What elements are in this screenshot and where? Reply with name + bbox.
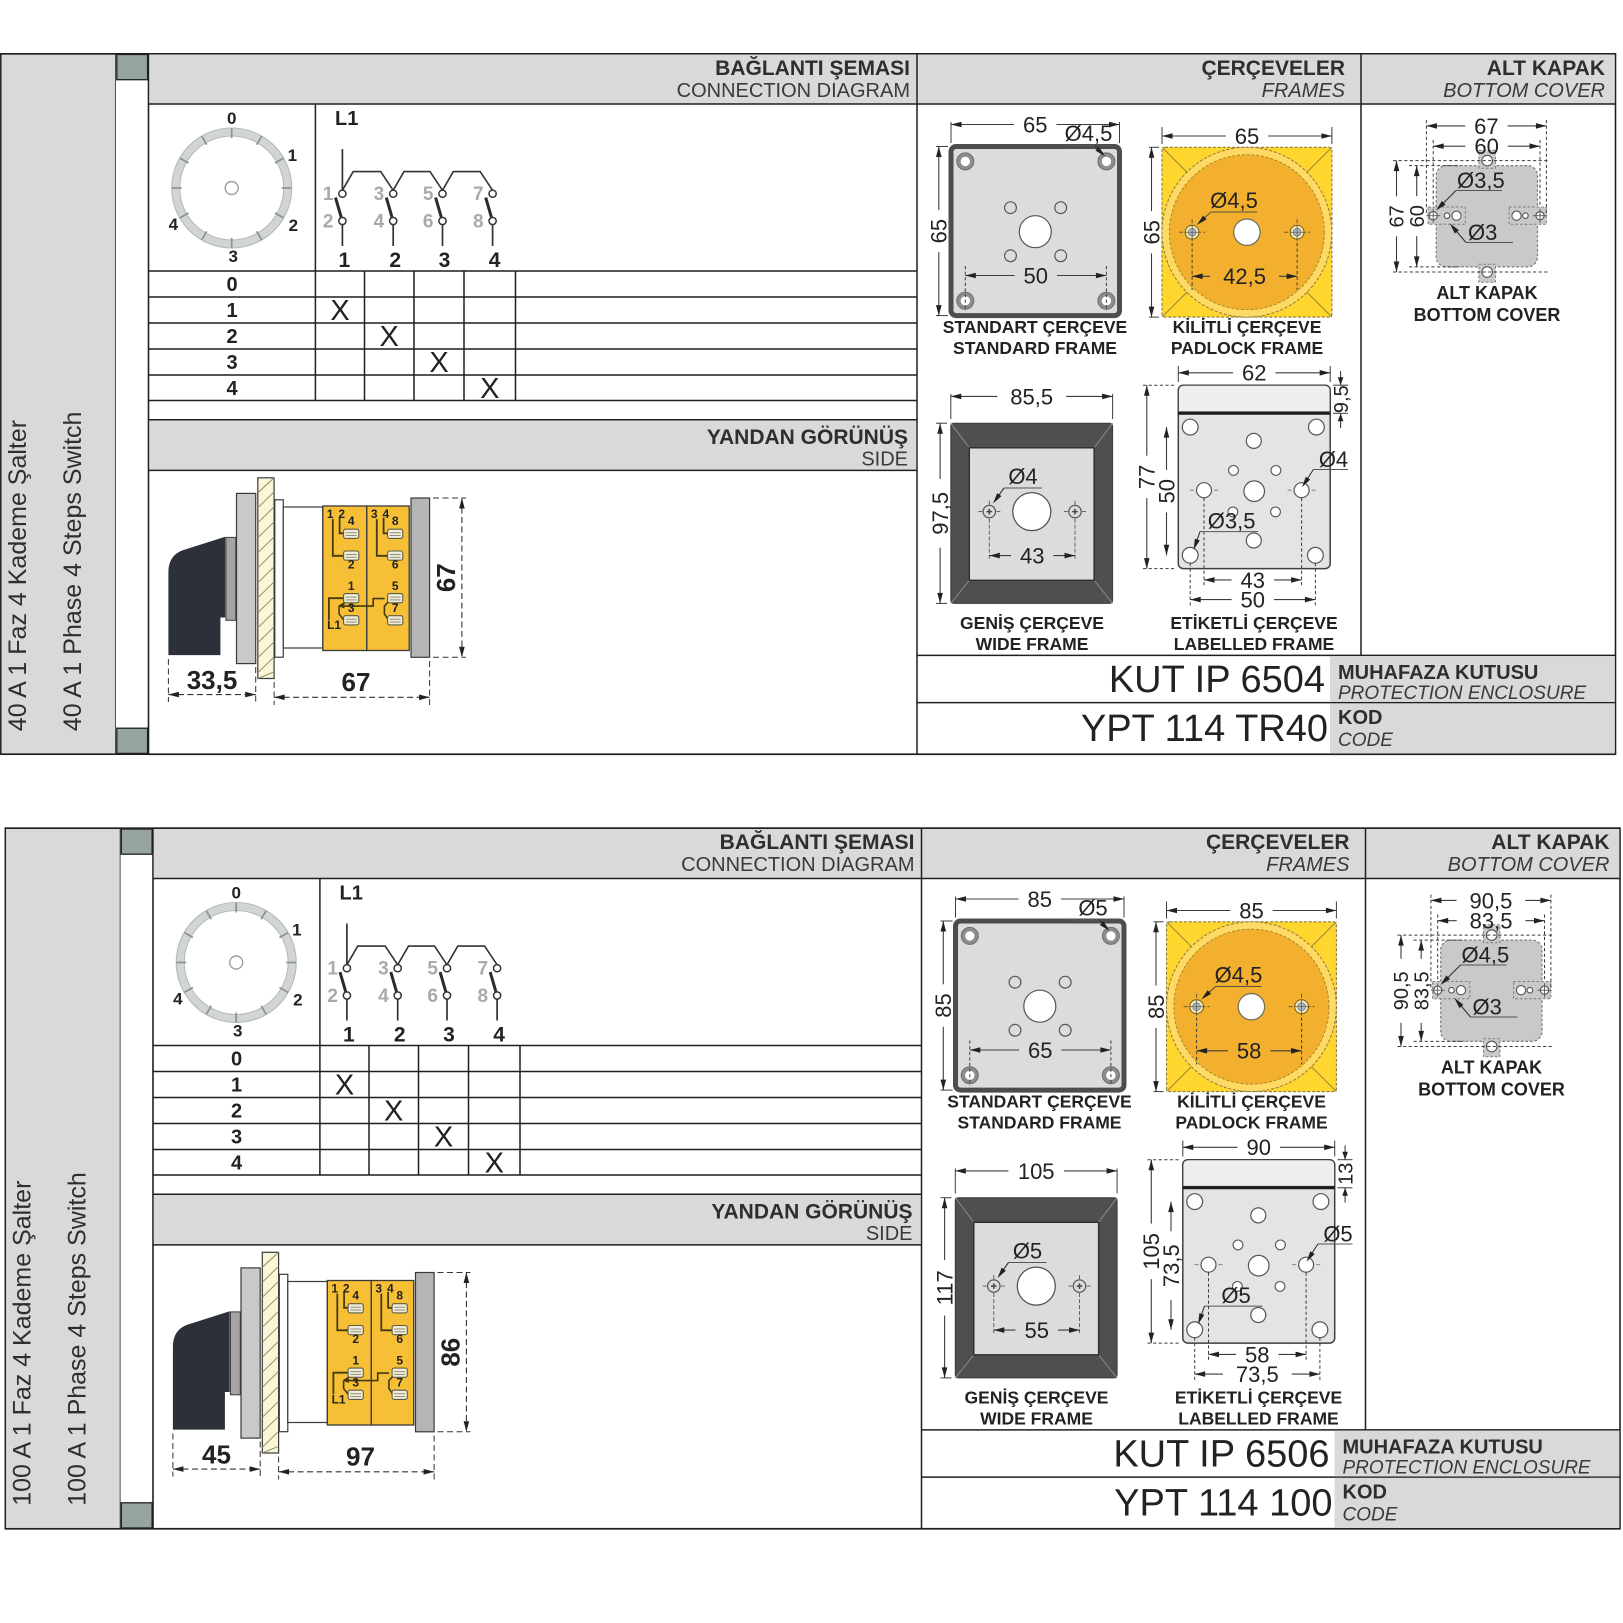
svg-text:2: 2 xyxy=(389,249,401,272)
svg-text:YANDAN GÖRÜNÜŞ: YANDAN GÖRÜNÜŞ xyxy=(707,426,908,449)
svg-text:4: 4 xyxy=(493,1024,505,1047)
svg-text:Ø4,5: Ø4,5 xyxy=(1210,188,1258,213)
svg-text:85: 85 xyxy=(1027,887,1051,912)
svg-text:1: 1 xyxy=(348,579,355,593)
svg-text:62: 62 xyxy=(1242,361,1266,386)
svg-text:83,5: 83,5 xyxy=(1411,971,1433,1010)
svg-text:CONNECTION DIAGRAM: CONNECTION DIAGRAM xyxy=(677,80,910,102)
svg-text:1: 1 xyxy=(327,507,334,521)
svg-text:2: 2 xyxy=(352,1332,359,1346)
svg-text:4: 4 xyxy=(169,215,179,234)
svg-text:97,5: 97,5 xyxy=(928,492,953,535)
svg-text:67: 67 xyxy=(342,667,371,697)
svg-text:ETİKETLİ ÇERÇEVE: ETİKETLİ ÇERÇEVE xyxy=(1170,613,1337,633)
svg-text:2: 2 xyxy=(338,507,345,521)
svg-text:50: 50 xyxy=(1024,263,1048,288)
svg-text:Ø3,5: Ø3,5 xyxy=(1208,509,1256,534)
svg-text:Ø4,5: Ø4,5 xyxy=(1462,942,1510,967)
svg-text:Ø3,5: Ø3,5 xyxy=(1457,168,1505,193)
svg-text:2: 2 xyxy=(348,558,355,572)
svg-text:Ø5: Ø5 xyxy=(1221,1283,1250,1308)
svg-text:67: 67 xyxy=(1387,205,1409,227)
svg-text:6: 6 xyxy=(392,558,399,572)
svg-text:7: 7 xyxy=(478,959,489,980)
svg-text:85: 85 xyxy=(931,993,956,1017)
svg-text:5: 5 xyxy=(392,579,399,593)
svg-text:3: 3 xyxy=(352,1376,359,1390)
svg-text:3: 3 xyxy=(443,1024,455,1047)
svg-text:STANDART ÇERÇEVE: STANDART ÇERÇEVE xyxy=(947,1092,1131,1112)
svg-text:X: X xyxy=(335,1070,354,1102)
svg-text:33,5: 33,5 xyxy=(187,665,238,695)
svg-text:X: X xyxy=(429,347,448,379)
svg-text:55: 55 xyxy=(1024,1318,1048,1343)
svg-text:MUHAFAZA KUTUSU: MUHAFAZA KUTUSU xyxy=(1343,1437,1543,1459)
svg-text:KOD: KOD xyxy=(1343,1482,1387,1504)
svg-text:PADLOCK FRAME: PADLOCK FRAME xyxy=(1175,1113,1327,1133)
svg-text:2: 2 xyxy=(289,216,298,235)
svg-text:60: 60 xyxy=(1474,134,1498,159)
svg-text:Ø3: Ø3 xyxy=(1473,995,1502,1020)
svg-text:5: 5 xyxy=(396,1354,403,1368)
svg-text:2: 2 xyxy=(343,1282,350,1296)
svg-text:13: 13 xyxy=(1336,1163,1358,1185)
svg-text:3: 3 xyxy=(439,249,451,272)
svg-text:3: 3 xyxy=(375,1282,382,1296)
svg-text:4: 4 xyxy=(352,1289,359,1303)
svg-text:BOTTOM COVER: BOTTOM COVER xyxy=(1443,80,1605,102)
svg-text:Ø4,5: Ø4,5 xyxy=(1065,121,1113,146)
svg-text:KUT IP 6506: KUT IP 6506 xyxy=(1113,1434,1329,1476)
svg-text:4: 4 xyxy=(231,1153,243,1175)
svg-text:PADLOCK FRAME: PADLOCK FRAME xyxy=(1171,338,1323,358)
svg-text:2: 2 xyxy=(327,986,338,1007)
svg-text:1: 1 xyxy=(288,146,297,165)
svg-text:7: 7 xyxy=(396,1376,403,1390)
svg-text:73,5: 73,5 xyxy=(1236,1362,1279,1387)
svg-text:2: 2 xyxy=(226,326,237,348)
svg-text:KİLİTLİ ÇERÇEVE: KİLİTLİ ÇERÇEVE xyxy=(1173,317,1322,337)
svg-text:CODE: CODE xyxy=(1343,1505,1398,1526)
svg-text:85: 85 xyxy=(1144,994,1169,1018)
svg-text:3: 3 xyxy=(348,601,355,615)
svg-text:L1: L1 xyxy=(327,618,341,632)
svg-text:65: 65 xyxy=(1028,1038,1052,1063)
svg-text:50: 50 xyxy=(1241,588,1265,613)
svg-text:STANDARD FRAME: STANDARD FRAME xyxy=(958,1113,1122,1133)
svg-text:1: 1 xyxy=(323,184,334,205)
svg-text:X: X xyxy=(380,321,399,353)
svg-text:3: 3 xyxy=(226,352,237,374)
svg-text:GENİŞ ÇERÇEVE: GENİŞ ÇERÇEVE xyxy=(965,1388,1109,1408)
svg-text:WIDE FRAME: WIDE FRAME xyxy=(976,634,1089,654)
svg-text:2: 2 xyxy=(394,1024,406,1047)
svg-text:STANDART ÇERÇEVE: STANDART ÇERÇEVE xyxy=(943,317,1127,337)
svg-text:8: 8 xyxy=(478,986,489,1007)
svg-text:KOD: KOD xyxy=(1338,707,1382,729)
svg-text:CONNECTION DIAGRAM: CONNECTION DIAGRAM xyxy=(681,854,914,876)
svg-text:58: 58 xyxy=(1237,1039,1261,1064)
svg-text:X: X xyxy=(330,295,349,327)
svg-text:GENİŞ ÇERÇEVE: GENİŞ ÇERÇEVE xyxy=(960,613,1104,633)
svg-text:85,5: 85,5 xyxy=(1010,384,1053,409)
svg-text:7: 7 xyxy=(392,601,399,615)
svg-text:X: X xyxy=(480,373,499,405)
svg-text:ALT KAPAK: ALT KAPAK xyxy=(1436,283,1537,303)
svg-text:LABELLED FRAME: LABELLED FRAME xyxy=(1178,1409,1338,1429)
svg-text:0: 0 xyxy=(231,884,240,903)
svg-text:WIDE FRAME: WIDE FRAME xyxy=(980,1409,1093,1429)
svg-text:5: 5 xyxy=(427,959,438,980)
svg-text:8: 8 xyxy=(396,1289,403,1303)
svg-text:6: 6 xyxy=(396,1332,403,1346)
svg-text:65: 65 xyxy=(927,219,952,243)
svg-text:PROTECTION ENCLOSURE: PROTECTION ENCLOSURE xyxy=(1343,1458,1591,1479)
svg-text:1: 1 xyxy=(226,300,237,322)
svg-text:4: 4 xyxy=(489,249,501,272)
svg-text:90,5: 90,5 xyxy=(1391,971,1413,1010)
svg-text:45: 45 xyxy=(202,1440,231,1470)
svg-text:65: 65 xyxy=(1023,112,1047,137)
svg-text:Ø5: Ø5 xyxy=(1078,896,1107,921)
svg-text:1: 1 xyxy=(343,1024,355,1047)
svg-text:42,5: 42,5 xyxy=(1223,264,1266,289)
svg-text:Ø4: Ø4 xyxy=(1008,464,1037,489)
svg-text:YANDAN GÖRÜNÜŞ: YANDAN GÖRÜNÜŞ xyxy=(711,1201,912,1224)
svg-text:FRAMES: FRAMES xyxy=(1266,854,1350,876)
svg-text:9,5: 9,5 xyxy=(1331,385,1353,413)
svg-text:50: 50 xyxy=(1154,479,1179,503)
svg-text:100 A 1 Faz 4 Kademe Şalter: 100 A 1 Faz 4 Kademe Şalter xyxy=(9,1181,37,1506)
svg-text:4: 4 xyxy=(173,990,183,1009)
svg-text:BAĞLANTI ŞEMASI: BAĞLANTI ŞEMASI xyxy=(715,56,910,80)
svg-text:105: 105 xyxy=(1018,1159,1055,1184)
svg-text:4: 4 xyxy=(387,1282,394,1296)
svg-text:ALT KAPAK: ALT KAPAK xyxy=(1441,1058,1542,1078)
svg-text:8: 8 xyxy=(473,212,484,233)
svg-text:SIDE: SIDE xyxy=(866,1223,913,1245)
svg-text:73,5: 73,5 xyxy=(1159,1244,1184,1287)
svg-text:4: 4 xyxy=(226,378,238,400)
svg-text:3: 3 xyxy=(374,184,385,205)
svg-text:KUT IP 6504: KUT IP 6504 xyxy=(1109,659,1325,701)
svg-text:L1: L1 xyxy=(335,108,358,130)
svg-text:1: 1 xyxy=(292,921,301,940)
svg-text:8: 8 xyxy=(392,514,399,528)
svg-text:BOTTOM COVER: BOTTOM COVER xyxy=(1418,1080,1565,1100)
svg-text:Ø5: Ø5 xyxy=(1323,1222,1352,1247)
svg-text:0: 0 xyxy=(227,109,236,128)
svg-text:ÇERÇEVELER: ÇERÇEVELER xyxy=(1201,57,1345,80)
svg-text:85: 85 xyxy=(1239,898,1263,923)
svg-text:1: 1 xyxy=(331,1282,338,1296)
svg-text:STANDARD FRAME: STANDARD FRAME xyxy=(953,338,1117,358)
svg-text:40 A 1 Faz 4 Kademe Şalter: 40 A 1 Faz 4 Kademe Şalter xyxy=(4,420,32,731)
svg-text:40 A 1 Phase 4 Steps Switch: 40 A 1 Phase 4 Steps Switch xyxy=(59,412,87,732)
svg-text:3: 3 xyxy=(371,507,378,521)
svg-text:5: 5 xyxy=(423,184,434,205)
svg-text:0: 0 xyxy=(226,274,237,296)
svg-text:Ø3: Ø3 xyxy=(1468,220,1497,245)
svg-text:67: 67 xyxy=(431,563,461,592)
svg-text:FRAMES: FRAMES xyxy=(1262,80,1346,102)
svg-text:ÇERÇEVELER: ÇERÇEVELER xyxy=(1206,831,1350,854)
svg-text:Ø5: Ø5 xyxy=(1013,1239,1042,1264)
svg-text:BOTTOM COVER: BOTTOM COVER xyxy=(1414,305,1561,325)
svg-text:2: 2 xyxy=(323,212,334,233)
svg-text:1: 1 xyxy=(352,1354,359,1368)
svg-text:4: 4 xyxy=(374,212,385,233)
svg-text:PROTECTION ENCLOSURE: PROTECTION ENCLOSURE xyxy=(1338,683,1586,704)
svg-text:3: 3 xyxy=(231,1127,242,1149)
svg-text:2: 2 xyxy=(231,1101,242,1123)
svg-text:YPT 114 100: YPT 114 100 xyxy=(1114,1483,1332,1525)
svg-text:4: 4 xyxy=(348,514,355,528)
svg-text:YPT 114 TR40: YPT 114 TR40 xyxy=(1081,708,1328,750)
svg-text:3: 3 xyxy=(378,959,389,980)
svg-text:L1: L1 xyxy=(340,883,363,905)
svg-text:SIDE: SIDE xyxy=(861,449,908,471)
svg-text:97: 97 xyxy=(346,1442,375,1472)
svg-text:117: 117 xyxy=(933,1270,958,1305)
svg-text:4: 4 xyxy=(378,986,389,1007)
svg-text:7: 7 xyxy=(473,184,484,205)
svg-text:X: X xyxy=(434,1122,453,1154)
svg-text:100 A 1 Phase 4 Steps Switch: 100 A 1 Phase 4 Steps Switch xyxy=(64,1172,92,1506)
svg-text:6: 6 xyxy=(427,986,438,1007)
svg-text:BAĞLANTI ŞEMASI: BAĞLANTI ŞEMASI xyxy=(720,830,915,854)
svg-text:0: 0 xyxy=(231,1049,242,1071)
svg-text:ALT KAPAK: ALT KAPAK xyxy=(1487,57,1605,80)
svg-text:L1: L1 xyxy=(332,1393,346,1407)
svg-text:ETİKETLİ ÇERÇEVE: ETİKETLİ ÇERÇEVE xyxy=(1175,1388,1342,1408)
svg-text:6: 6 xyxy=(423,212,434,233)
svg-text:X: X xyxy=(485,1148,504,1180)
svg-text:90: 90 xyxy=(1246,1135,1270,1160)
svg-text:LABELLED FRAME: LABELLED FRAME xyxy=(1174,634,1334,654)
svg-text:4: 4 xyxy=(382,507,389,521)
svg-text:Ø4: Ø4 xyxy=(1319,447,1348,472)
svg-text:86: 86 xyxy=(436,1338,466,1367)
svg-text:KİLİTLİ ÇERÇEVE: KİLİTLİ ÇERÇEVE xyxy=(1177,1092,1326,1112)
svg-text:1: 1 xyxy=(339,249,351,272)
svg-text:3: 3 xyxy=(228,247,237,266)
svg-text:2: 2 xyxy=(293,991,302,1010)
svg-text:3: 3 xyxy=(233,1022,242,1041)
svg-text:1: 1 xyxy=(231,1075,242,1097)
svg-text:65: 65 xyxy=(1139,220,1164,244)
svg-text:X: X xyxy=(384,1096,403,1128)
svg-text:1: 1 xyxy=(327,959,338,980)
svg-text:CODE: CODE xyxy=(1338,730,1393,751)
svg-text:BOTTOM COVER: BOTTOM COVER xyxy=(1448,854,1610,876)
svg-text:Ø4,5: Ø4,5 xyxy=(1215,963,1263,988)
svg-text:ALT KAPAK: ALT KAPAK xyxy=(1491,831,1609,854)
svg-text:60: 60 xyxy=(1407,205,1429,227)
svg-text:65: 65 xyxy=(1235,124,1259,149)
svg-text:43: 43 xyxy=(1020,544,1044,569)
svg-text:MUHAFAZA KUTUSU: MUHAFAZA KUTUSU xyxy=(1338,662,1538,684)
svg-text:83,5: 83,5 xyxy=(1470,909,1513,934)
